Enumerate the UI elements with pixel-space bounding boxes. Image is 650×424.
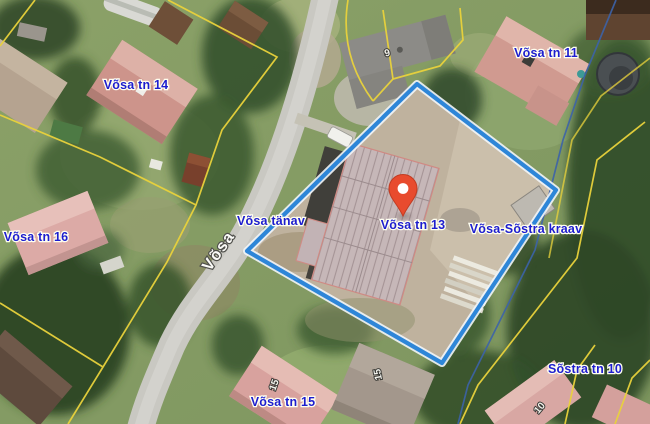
label-vosa-tn-14: Võsa tn 14 (104, 78, 169, 92)
label-vosa-tn-11: Võsa tn 11 (514, 46, 578, 60)
label-sostra-tn-10: Sõstra tn 10 (548, 362, 622, 376)
label-vosa-tn-15: Võsa tn 15 (251, 395, 316, 409)
label-vosa-tn-16: Võsa tn 16 (4, 230, 69, 244)
shed-topright (586, 0, 650, 40)
street-label-horizontal: Võsa tänav (237, 214, 305, 228)
label-vosa-tn-13: Võsa tn 13 (381, 218, 446, 232)
aerial-map-canvas[interactable]: Võsa Võsa tänav Võsa tn 14 Võsa tn 11 Võ… (0, 0, 650, 424)
label-vosa-sostra-kraav: Võsa-Sõstra kraav (470, 222, 583, 236)
marker-pin-hole (398, 183, 409, 194)
map-viewport[interactable]: Võsa Võsa tänav Võsa tn 14 Võsa tn 11 Võ… (0, 0, 650, 424)
